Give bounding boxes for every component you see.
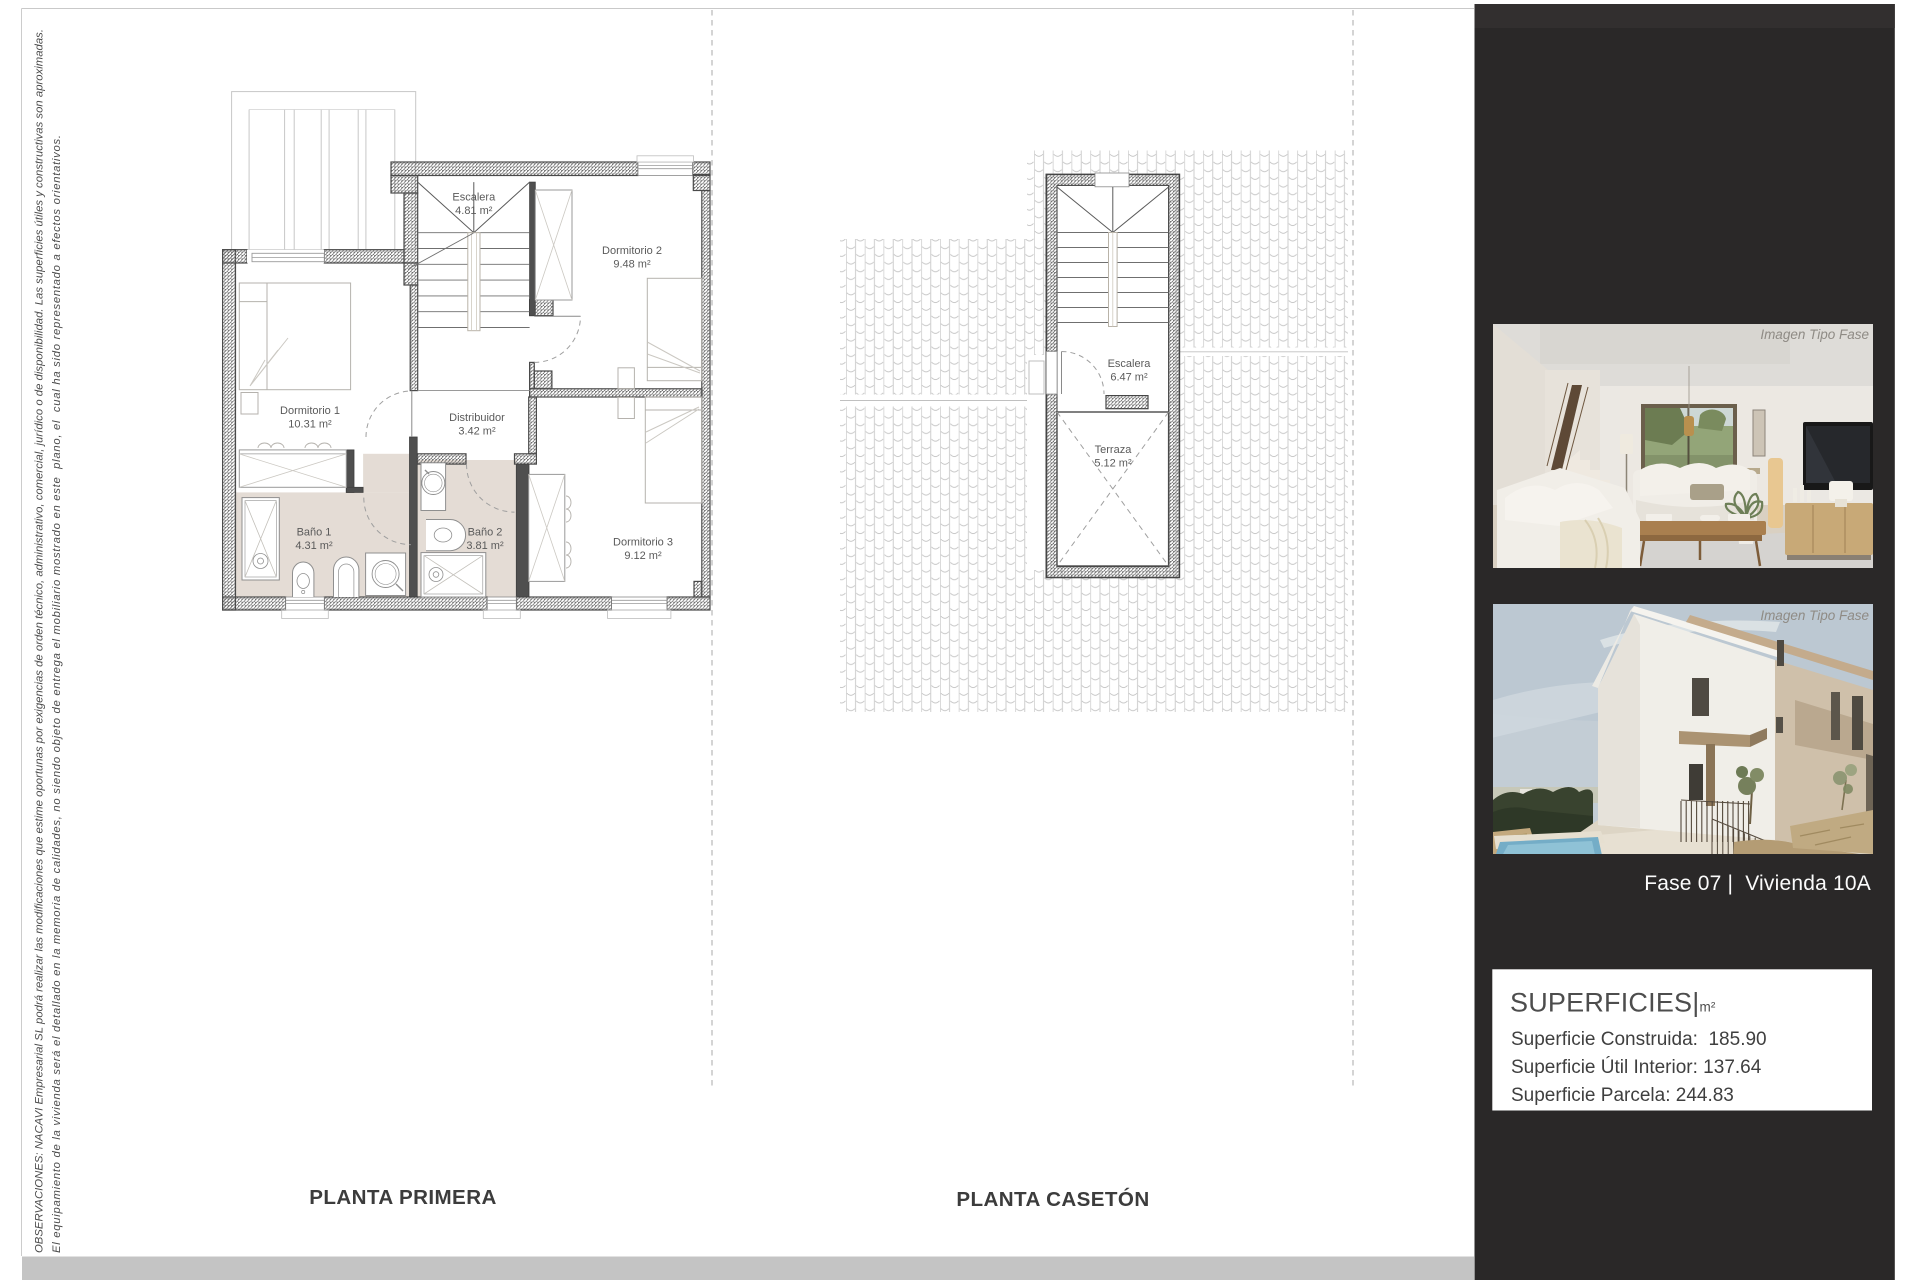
svg-text:3.81 m²: 3.81 m² (466, 540, 504, 552)
svg-text:PLANTA CASETÓN: PLANTA CASETÓN (956, 1187, 1149, 1211)
svg-text:5.12 m²: 5.12 m² (1094, 458, 1132, 470)
svg-text:Superficie Construida: 185.90: Superficie Construida: 185.90 (1511, 1029, 1767, 1050)
svg-text:Dormitorio 2: Dormitorio 2 (602, 245, 662, 257)
svg-text:Imagen Tipo Fase: Imagen Tipo Fase (1760, 608, 1869, 623)
svg-text:OBSERVACIONES: NACAVI Empresar: OBSERVACIONES: NACAVI Empresarial SL pod… (34, 29, 46, 1253)
svg-text:3.42 m²: 3.42 m² (458, 426, 496, 438)
svg-text:Terraza: Terraza (1095, 444, 1133, 456)
svg-text:PLANTA PRIMERA: PLANTA PRIMERA (309, 1186, 497, 1209)
svg-text:6.47 m²: 6.47 m² (1110, 372, 1148, 384)
svg-text:10.31 m²: 10.31 m² (288, 419, 332, 431)
svg-text:Imagen Tipo Fase: Imagen Tipo Fase (1760, 327, 1869, 342)
svg-text:Dormitorio 3: Dormitorio 3 (613, 537, 673, 549)
svg-text:9.48 m²: 9.48 m² (613, 259, 651, 271)
svg-text:Escalera: Escalera (1108, 358, 1152, 370)
svg-text:El equipamiento de la vivienda: El equipamiento de la vivienda será el d… (51, 135, 63, 1253)
svg-text:Escalera: Escalera (452, 192, 496, 204)
svg-text:SUPERFICIES|m²: SUPERFICIES|m² (1510, 988, 1716, 1018)
svg-text:Distribuidor: Distribuidor (449, 412, 505, 424)
svg-text:Superficie Parcela: 244.83: Superficie Parcela: 244.83 (1511, 1085, 1734, 1106)
svg-text:Baño 1: Baño 1 (297, 527, 332, 539)
svg-text:Fase 07 | Vivienda 10A: Fase 07 | Vivienda 10A (1644, 872, 1871, 895)
svg-text:4.31 m²: 4.31 m² (295, 540, 333, 552)
svg-text:Dormitorio 1: Dormitorio 1 (280, 405, 340, 417)
svg-text:4.81 m²: 4.81 m² (455, 205, 493, 217)
svg-text:Baño 2: Baño 2 (468, 527, 503, 539)
svg-text:Superficie Útil Interior: 137.: Superficie Útil Interior: 137.64 (1511, 1056, 1762, 1078)
svg-text:9.12 m²: 9.12 m² (624, 550, 662, 562)
